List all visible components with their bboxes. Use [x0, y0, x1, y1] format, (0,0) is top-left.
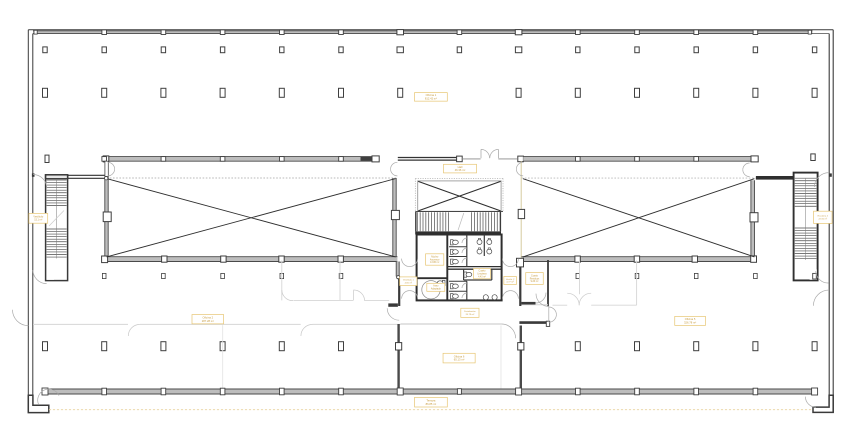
svg-text:812.42 m²: 812.42 m² — [425, 97, 437, 101]
svg-text:Escalera 2: Escalera 2 — [818, 215, 829, 218]
svg-text:Aseo: Aseo — [433, 285, 439, 288]
svg-text:22.50 m²: 22.50 m² — [818, 218, 827, 221]
svg-text:26.73 m²: 26.73 m² — [466, 313, 475, 316]
svg-text:Residuos: Residuos — [530, 278, 540, 280]
svg-text:Cuarto: Cuarto — [531, 274, 539, 277]
svg-text:4.43 m²: 4.43 m² — [478, 275, 486, 278]
svg-text:Limpieza: Limpieza — [477, 274, 487, 276]
svg-text:86.85 m²: 86.85 m² — [426, 402, 437, 406]
svg-text:Ascensor: Ascensor — [430, 258, 440, 261]
svg-text:9.26 m²: 9.26 m² — [531, 280, 539, 283]
svg-text:Cuarto: Cuarto — [479, 270, 487, 273]
svg-text:13.86 m²: 13.86 m² — [430, 261, 439, 264]
svg-text:Adaptado: Adaptado — [431, 288, 442, 291]
svg-text:287.28 m²: 287.28 m² — [202, 319, 214, 323]
svg-text:Núcleo: Núcleo — [431, 256, 439, 258]
svg-text:4.65 m²: 4.65 m² — [405, 281, 413, 284]
svg-text:326.78 m²: 326.78 m² — [684, 321, 696, 325]
svg-text:65.13 m²: 65.13 m² — [454, 358, 465, 362]
svg-text:15.1 m²: 15.1 m² — [34, 219, 42, 222]
svg-text:Vestíbulo 1: Vestíbulo 1 — [403, 279, 415, 282]
svg-text:46.36 m²: 46.36 m² — [455, 168, 466, 172]
svg-text:Distribución: Distribución — [464, 310, 476, 313]
svg-text:Vestíb. 2: Vestíb. 2 — [506, 278, 515, 281]
svg-text:4.77 m²: 4.77 m² — [506, 281, 514, 284]
